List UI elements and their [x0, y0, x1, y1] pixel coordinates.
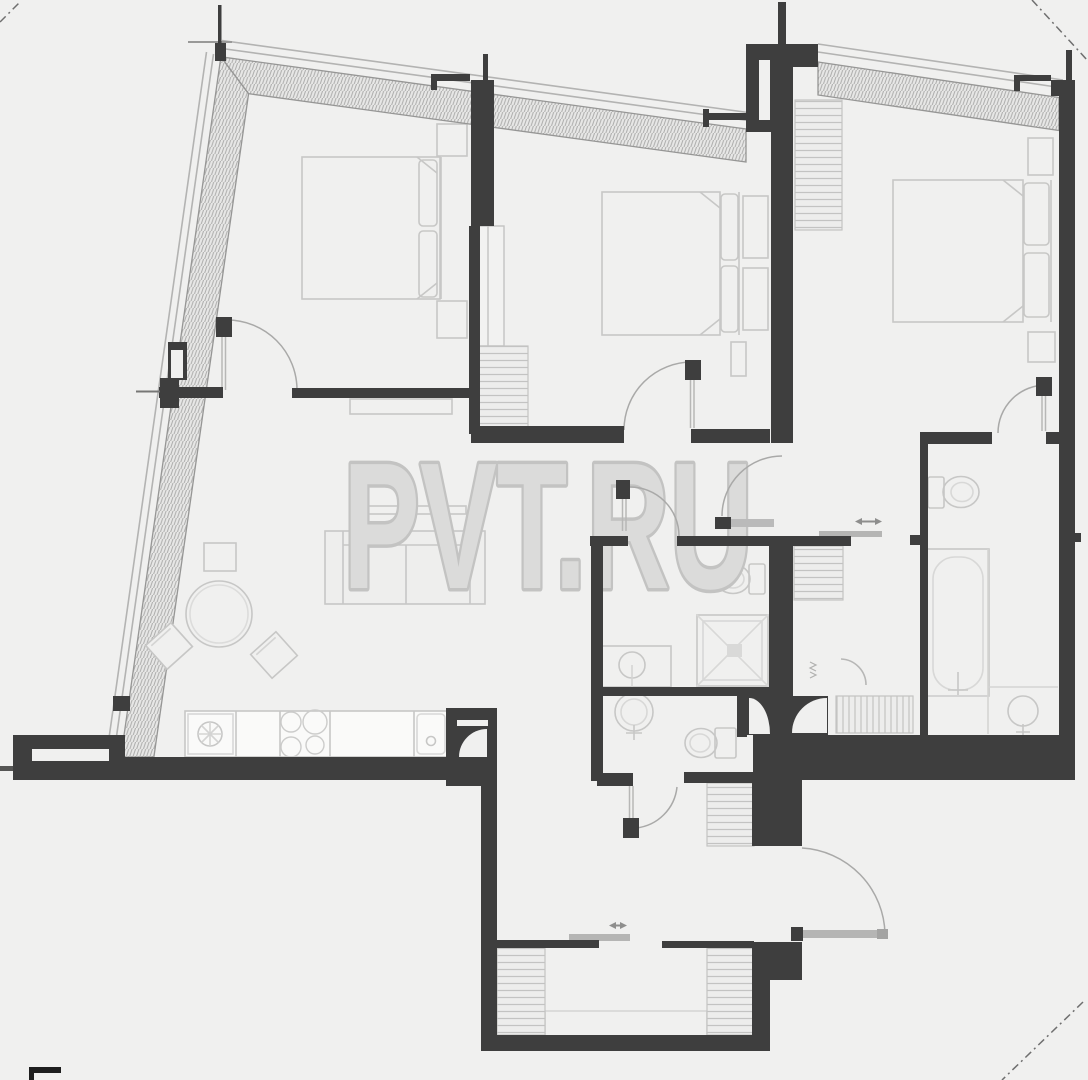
svg-text:PVT.RU: PVT.RU — [343, 426, 753, 627]
